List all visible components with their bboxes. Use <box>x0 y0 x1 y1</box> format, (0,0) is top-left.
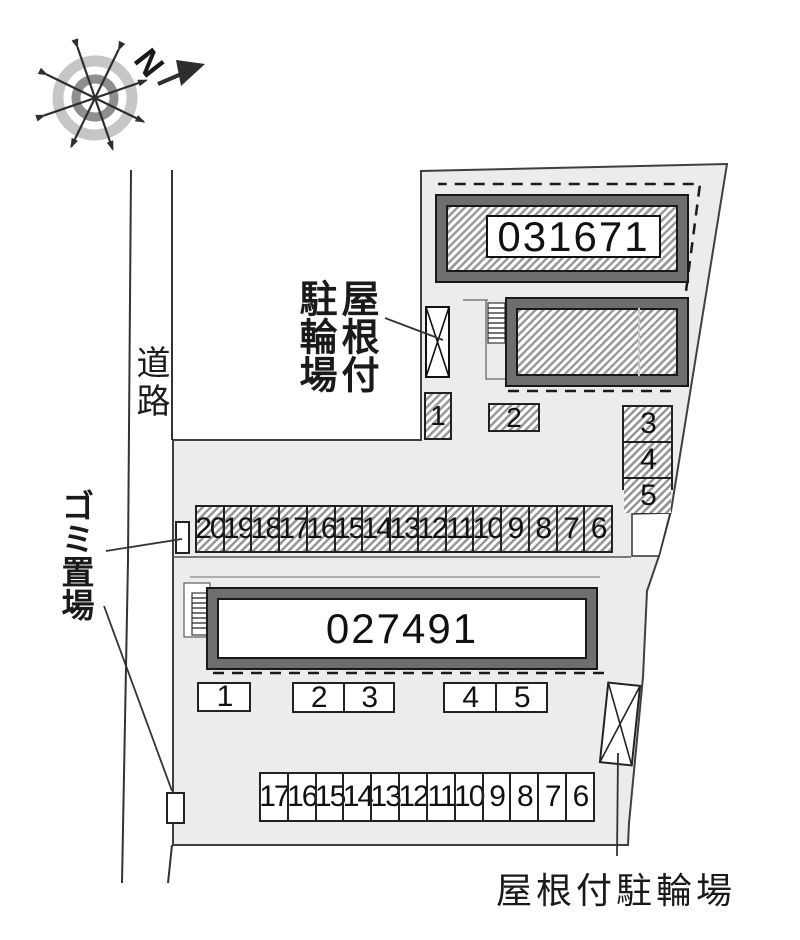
compass-icon <box>26 29 163 166</box>
parking-space-18: 18 <box>250 507 278 551</box>
parking-space-12: 12 <box>417 507 445 551</box>
bike-parking-box-upper <box>426 307 449 377</box>
parking-space-12: 12 <box>398 774 426 820</box>
stairs-icon-upper <box>488 303 505 343</box>
covered-bike-label-col-right: 屋根付 <box>337 279 375 393</box>
parking-space-4: 4 <box>624 441 671 477</box>
parking-space-8: 8 <box>528 507 556 551</box>
parking-space-5: 5 <box>495 684 547 711</box>
road-label: 道路 <box>133 345 167 421</box>
building-027491-id: 027491 <box>217 598 587 659</box>
parking-space-17: 17 <box>261 774 287 820</box>
boundary-notch <box>632 513 670 556</box>
building-annex <box>507 299 687 385</box>
parking-space-16: 16 <box>287 774 315 820</box>
parking-space-7: 7 <box>556 507 584 551</box>
parking-space-1: 1 <box>199 684 249 710</box>
parking-space-white-1: 1 <box>197 682 251 712</box>
parking-space-upper-2: 2 <box>488 403 540 432</box>
parking-row-17-6: 17161514131211109876 <box>259 772 595 822</box>
road-line-right-lower <box>168 845 172 883</box>
parking-space-5: 5 <box>624 477 671 513</box>
parking-space-14: 14 <box>342 774 370 820</box>
parking-space-14: 14 <box>361 507 389 551</box>
parking-space-upper-1: 1 <box>424 392 452 440</box>
parking-space-10: 10 <box>472 507 500 551</box>
parking-space-9: 9 <box>500 507 528 551</box>
building-031671-id-plate: 031671 <box>486 215 661 258</box>
parking-space-13: 13 <box>389 507 417 551</box>
garbage-box-lower <box>167 793 184 823</box>
parking-space-19: 19 <box>223 507 251 551</box>
building-027491: 027491 <box>208 589 596 668</box>
building-annex-divider <box>638 308 640 376</box>
site-layout-map: 031671 027491 1 2 345 201918171615141312… <box>0 0 800 940</box>
parking-pair-4-5: 45 <box>443 682 548 713</box>
leader-garbage-lower <box>104 606 172 791</box>
leader-garbage-upper <box>106 539 182 551</box>
garbage-area-label: ゴミ置場 <box>59 489 92 621</box>
garbage-box-upper <box>176 522 189 553</box>
parking-column-3-4-5: 345 <box>622 405 673 490</box>
parking-space-10: 10 <box>454 774 482 820</box>
building-031671: 031671 <box>437 196 687 281</box>
parking-space-11: 11 <box>445 507 473 551</box>
building-031671-id: 031671 <box>497 216 649 258</box>
leader-bike-lower <box>617 753 618 856</box>
parking-row-20-6: 20191817161514131211109876 <box>195 505 613 553</box>
parking-space-2: 2 <box>294 684 343 711</box>
parking-space-6: 6 <box>583 507 611 551</box>
parking-space-4: 4 <box>445 684 495 711</box>
parking-space-9: 9 <box>482 774 510 820</box>
parking-space-20: 20 <box>197 507 223 551</box>
covered-bike-label-col-left: 駐輪場 <box>295 279 333 393</box>
stairs-icon-lower <box>184 583 210 637</box>
covered-bike-label-bottom: 屋根付駐輪場 <box>496 862 736 914</box>
parking-space-13: 13 <box>370 774 398 820</box>
parking-pair-2-3: 23 <box>292 682 395 713</box>
parking-space-7: 7 <box>537 774 565 820</box>
road-line-left <box>122 170 131 883</box>
parking-space-11: 11 <box>426 774 454 820</box>
parking-space-15: 15 <box>315 774 343 820</box>
parking-space-3: 3 <box>624 407 671 441</box>
parking-space-8: 8 <box>509 774 537 820</box>
parking-space-3: 3 <box>343 684 394 711</box>
parking-space-6: 6 <box>565 774 593 820</box>
parking-space-17: 17 <box>278 507 306 551</box>
parking-space-16: 16 <box>306 507 334 551</box>
parking-space-15: 15 <box>334 507 362 551</box>
